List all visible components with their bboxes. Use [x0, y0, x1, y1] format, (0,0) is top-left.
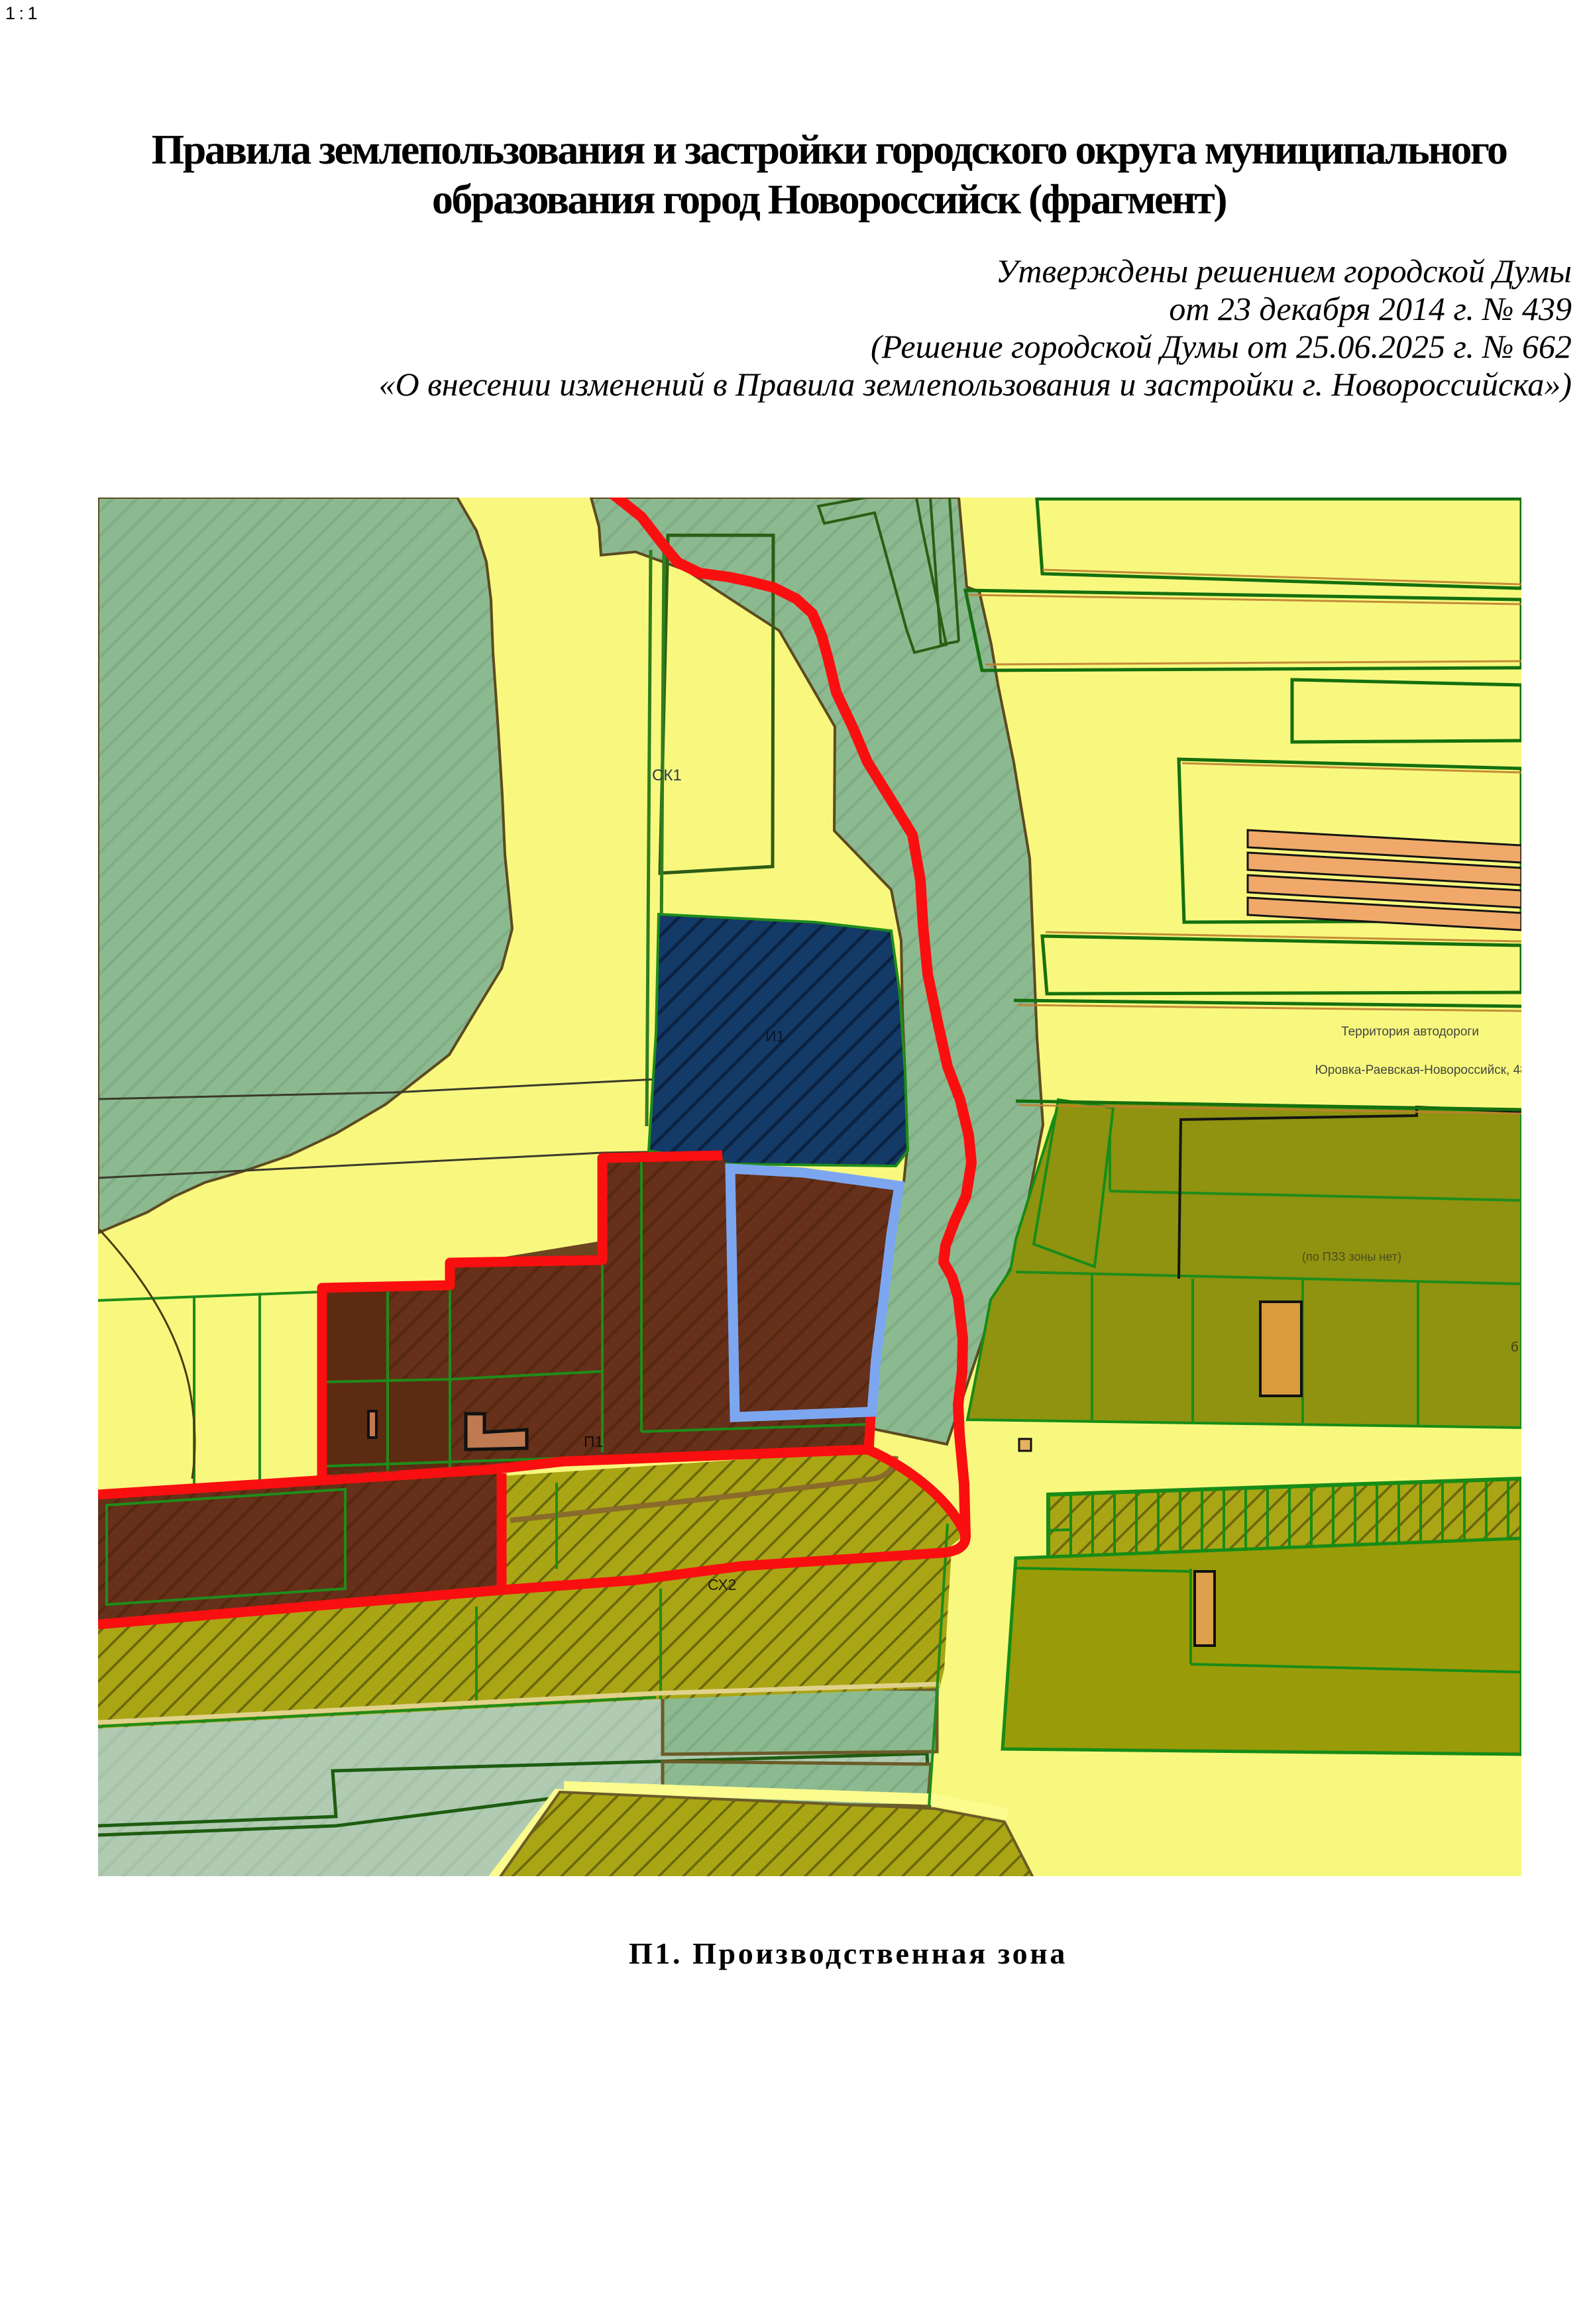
svg-text:б: б	[1511, 1340, 1518, 1355]
svg-text:Территория автодороги: Территория автодороги	[1341, 1025, 1479, 1039]
svg-text:П1: П1	[584, 1433, 603, 1450]
svg-text:СК1: СК1	[652, 766, 682, 784]
svg-text:(по ПЗЗ зоны нет): (по ПЗЗ зоны нет)	[1302, 1250, 1401, 1263]
svg-text:Юровка-Раевская-Новороссийск,: Юровка-Раевская-Новороссийск, 48 км	[1315, 1063, 1545, 1077]
svg-text:И1: И1	[765, 1028, 785, 1045]
svg-text:СХ2: СХ2	[708, 1576, 736, 1593]
